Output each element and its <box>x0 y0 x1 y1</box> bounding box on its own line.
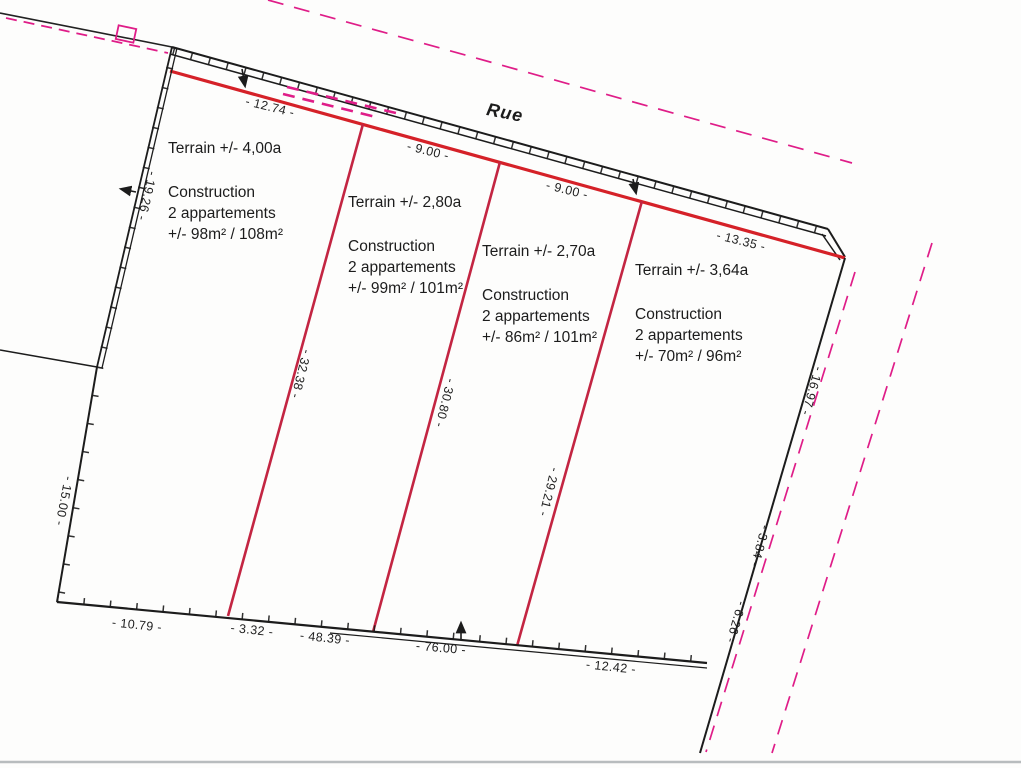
parcel-1-construction-line-3: +/- 98m² / 108m² <box>168 224 283 245</box>
parcel-4-construction-line-3: +/- 70m² / 96m² <box>635 346 748 367</box>
right-dashed-line-outer <box>772 243 932 753</box>
adjacent-parcel-line-left <box>0 350 97 367</box>
street-farside-dashed-line <box>268 0 852 163</box>
utility-marker-square <box>116 25 137 42</box>
parcel-1-construction-line-1: Construction <box>168 182 283 203</box>
parcel-4-label: Terrain +/- 3,64a Construction 2 apparte… <box>635 260 748 367</box>
arrow-left-icon <box>121 189 136 192</box>
arrow-down-icon <box>633 179 636 193</box>
parcel-4-terrain: Terrain +/- 3,64a <box>635 260 748 281</box>
parcel-2-label: Terrain +/- 2,80a Construction 2 apparte… <box>348 192 463 299</box>
parcel-3-terrain: Terrain +/- 2,70a <box>482 241 597 262</box>
parcel-2-terrain: Terrain +/- 2,80a <box>348 192 463 213</box>
parcel-3-construction-line-3: +/- 86m² / 101m² <box>482 327 597 348</box>
parcel-3-construction-line-2: 2 appartements <box>482 306 597 327</box>
parcel-2-construction-line-2: 2 appartements <box>348 257 463 278</box>
parcel-1-label: Terrain +/- 4,00a Construction 2 apparte… <box>168 138 283 245</box>
survey-plan: Rue Terrain +/- 4,00a Construction 2 app… <box>0 0 1021 768</box>
parcel-3-construction-line-1: Construction <box>482 285 597 306</box>
parcel-4-construction-line-2: 2 appartements <box>635 325 748 346</box>
parcel-1-construction-line-2: 2 appartements <box>168 203 283 224</box>
utility-dashed-line-topleft <box>6 18 168 53</box>
parcel-3-label: Terrain +/- 2,70a Construction 2 apparte… <box>482 241 597 348</box>
adjacent-road-line <box>0 13 172 47</box>
parcel-2-construction-line-1: Construction <box>348 236 463 257</box>
parcel-4-construction-line-1: Construction <box>635 304 748 325</box>
parcel-2-construction-line-3: +/- 99m² / 101m² <box>348 278 463 299</box>
parcel-1-terrain: Terrain +/- 4,00a <box>168 138 283 159</box>
